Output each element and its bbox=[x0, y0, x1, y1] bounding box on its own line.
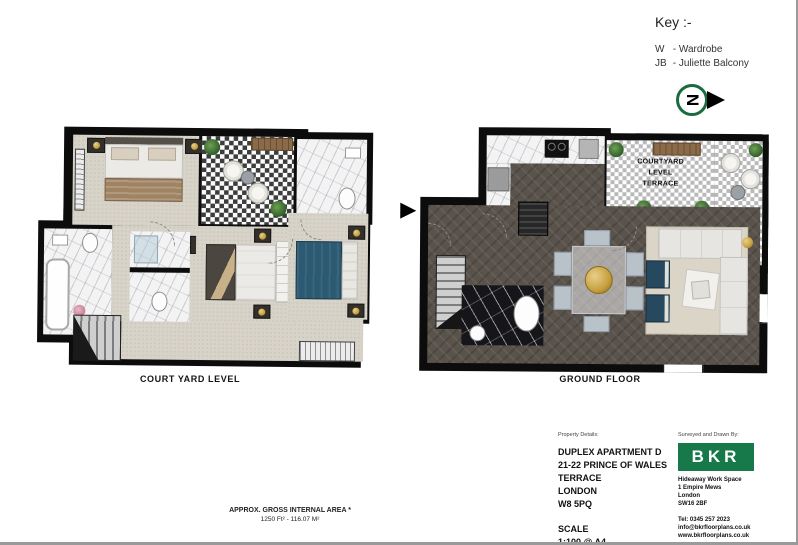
surveyor-details: Surveyed and Drawn By: BKR Hideaway Work… bbox=[678, 432, 792, 545]
kitchen-sink bbox=[579, 139, 599, 159]
address-line-4: SW16 2BF bbox=[678, 500, 792, 508]
area-note: APPROX. GROSS INTERNAL AREA * 1250 Ft² -… bbox=[195, 506, 385, 524]
hall-wardrobe-unit bbox=[518, 201, 548, 235]
floor-lamp-icon bbox=[742, 237, 753, 248]
shower-tray bbox=[513, 295, 539, 331]
window bbox=[759, 293, 767, 323]
sofa bbox=[719, 257, 748, 335]
property-details-header: Property Details: bbox=[558, 432, 676, 438]
armchair bbox=[646, 260, 670, 288]
terrace-label: COURTYARD LEVEL TERRACE bbox=[616, 156, 704, 190]
floorplan-page: Key :- W - Wardrobe JB - Juliette Balcon… bbox=[0, 0, 798, 545]
area-note-line2: 1250 Ft² - 116.07 M² bbox=[195, 515, 385, 524]
dining-chair bbox=[584, 230, 610, 246]
area-note-line1: APPROX. GROSS INTERNAL AREA * bbox=[195, 506, 385, 515]
website: www.bkrfloorplans.co.uk bbox=[678, 532, 792, 540]
email: info@bkrfloorplans.co.uk bbox=[678, 524, 792, 532]
terrace-chair bbox=[721, 153, 741, 173]
scale-value: 1:100 @ A4 bbox=[558, 536, 676, 545]
entrance-arrow-icon bbox=[400, 203, 416, 219]
dining-chair bbox=[554, 252, 572, 276]
address-line-2: 1 Empire Mews bbox=[678, 484, 792, 492]
window bbox=[663, 365, 703, 373]
terrace-bench bbox=[653, 142, 701, 155]
property-line-1: DUPLEX APARTMENT D bbox=[558, 446, 676, 459]
surveyor-header: Surveyed and Drawn By: bbox=[678, 432, 792, 438]
dining-chair bbox=[626, 252, 644, 276]
terrace-label-line3: TERRACE bbox=[616, 178, 704, 190]
property-line-3: LONDON bbox=[558, 485, 676, 498]
ground-floor-plan-label: GROUND FLOOR bbox=[520, 374, 680, 384]
terrace-chair bbox=[740, 169, 760, 189]
armchair bbox=[645, 294, 669, 322]
bkr-logo: BKR bbox=[678, 443, 754, 471]
address-line-1: Hideaway Work Space bbox=[678, 476, 792, 484]
dining-chair bbox=[583, 316, 609, 332]
surveyor-address: Hideaway Work Space 1 Empire Mews London… bbox=[678, 476, 792, 508]
dining-chair bbox=[554, 286, 572, 310]
plant-icon bbox=[749, 143, 763, 157]
dining-centrepiece bbox=[585, 266, 613, 294]
title-block: Property Details: DUPLEX APARTMENT D 21-… bbox=[556, 428, 792, 542]
scale-label: SCALE bbox=[558, 523, 676, 536]
tel: Tel: 0345 257 2023 bbox=[678, 516, 792, 524]
property-line-4: W8 5PQ bbox=[558, 498, 676, 511]
terrace-label-line2: LEVEL bbox=[617, 167, 705, 179]
hob bbox=[545, 140, 569, 158]
surveyor-contact: Tel: 0345 257 2023 info@bkrfloorplans.co… bbox=[678, 516, 792, 540]
property-details: Property Details: DUPLEX APARTMENT D 21-… bbox=[558, 432, 676, 545]
address-line-3: London bbox=[678, 492, 792, 500]
terrace-label-line1: COURTYARD bbox=[617, 156, 705, 168]
terrace-table bbox=[730, 185, 745, 200]
sofa bbox=[658, 228, 742, 259]
plant-icon bbox=[609, 142, 624, 157]
coffee-table bbox=[691, 280, 711, 300]
shower-room-sink bbox=[469, 325, 485, 341]
property-line-2: 21-22 PRINCE OF WALES TERRACE bbox=[558, 459, 676, 485]
courtyard-plan-label: COURT YARD LEVEL bbox=[90, 374, 290, 384]
dining-chair bbox=[626, 286, 644, 310]
kitchen-appliance bbox=[487, 167, 509, 191]
